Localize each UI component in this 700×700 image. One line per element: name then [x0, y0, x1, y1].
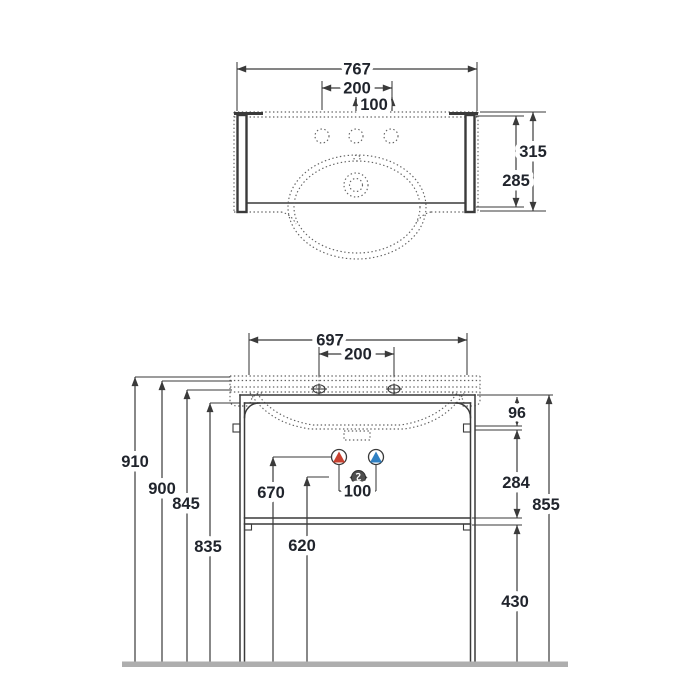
dim-label-284: 284: [502, 474, 530, 492]
top-view: 767 200 100 315 285: [234, 61, 547, 260]
dim-height-835: 835: [194, 403, 240, 662]
dim-height-910: 910: [121, 377, 230, 662]
dim-label-670: 670: [257, 484, 285, 502]
dim-label-845: 845: [172, 495, 200, 513]
drain-slot: [344, 431, 370, 440]
dim-label-100-front: 100: [344, 483, 372, 501]
technical-drawing-page: 767 200 100 315 285: [0, 0, 700, 700]
dim-label-100-plan: 100: [360, 96, 388, 114]
dim-label-910: 910: [121, 453, 149, 471]
corner-bracket-left: [245, 403, 260, 418]
shelf-lug-left: [245, 524, 252, 530]
dim-height-845: 845: [172, 390, 232, 662]
dim-height-900: 900: [148, 381, 232, 662]
dim-supply-height: 670: [257, 457, 331, 662]
dim-label-855: 855: [532, 496, 560, 514]
tap-holes: [315, 129, 398, 143]
dim-plan-tap-offset: 100: [356, 96, 392, 114]
dim-plan-depths: 315 285: [476, 112, 547, 211]
dim-label-315: 315: [519, 143, 547, 161]
tap-hole-symbols: [311, 384, 402, 395]
dim-label-697: 697: [316, 332, 344, 350]
dim-label-430: 430: [501, 593, 529, 611]
dim-label-285: 285: [502, 172, 530, 190]
side-rail-lug-left: [233, 424, 240, 432]
basin-bowl-profile: [250, 393, 464, 440]
corner-bracket-right: [456, 403, 471, 418]
basin-oval: [288, 155, 426, 259]
ceramic-top-outline: [234, 112, 478, 224]
dim-label-835: 835: [194, 538, 222, 556]
dim-label-96: 96: [508, 405, 526, 422]
dim-label-620: 620: [288, 537, 316, 555]
drain-hole: [344, 173, 368, 197]
ceramic-slab: [230, 376, 480, 406]
shelf-lug-right: [464, 524, 471, 530]
dim-label-200-plan: 200: [343, 80, 371, 98]
dim-right-chain: 96 284 430 855: [472, 395, 560, 662]
dim-label-200-front: 200: [344, 346, 372, 364]
front-view: 697 200 910 900 845: [121, 332, 568, 668]
towel-rail-right: [466, 115, 475, 212]
console-frame: [233, 395, 475, 662]
towel-rails: [234, 114, 478, 213]
side-rail-lug-right: [464, 424, 471, 432]
overflow-hole: [354, 155, 360, 161]
dim-label-767: 767: [343, 61, 371, 79]
floor-line: [122, 662, 568, 668]
towel-rail-left: [238, 115, 247, 212]
dim-waste-height: 620: [288, 477, 329, 662]
drawing-canvas: 767 200 100 315 285: [0, 0, 700, 700]
dim-front-tap-spacing: 200: [319, 346, 394, 385]
